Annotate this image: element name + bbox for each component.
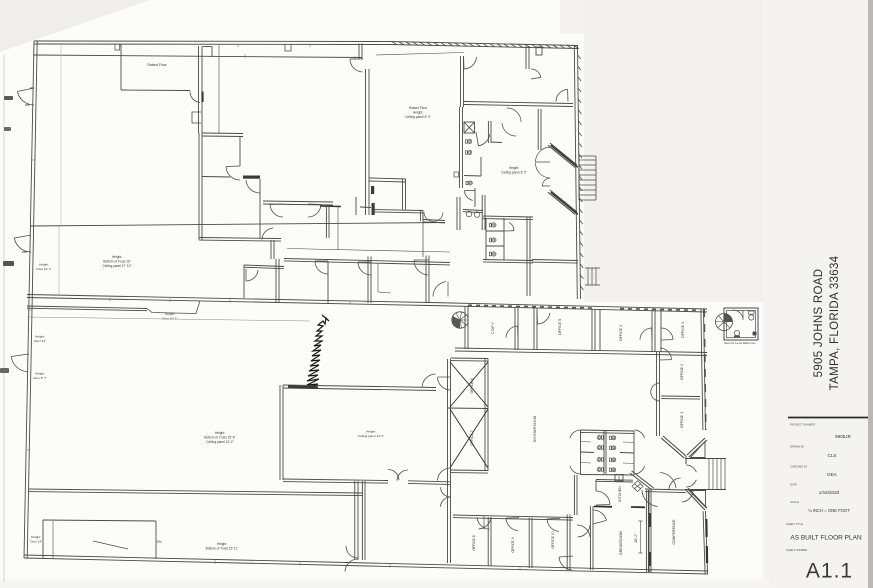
svg-text:DEA: DEA: [827, 472, 837, 477]
svg-text:ON: ON: [157, 540, 162, 544]
svg-text:Door 14': Door 14': [30, 540, 42, 544]
svg-text:18'-2": 18'-2": [634, 533, 638, 543]
svg-text:PROJECT NUMBER: PROJECT NUMBER: [790, 423, 815, 427]
svg-text:Height:: Height:: [509, 166, 519, 170]
svg-text:5905JR: 5905JR: [835, 434, 852, 439]
svg-text:5905 JOHNS ROAD: 5905 JOHNS ROAD: [813, 269, 825, 378]
svg-text:BREAKROOM: BREAKROOM: [619, 531, 623, 554]
svg-text:Height:: Height:: [165, 312, 175, 316]
svg-text:Bottom of Truss 16': Bottom of Truss 16': [103, 260, 131, 264]
svg-text:Height:: Height:: [112, 255, 122, 259]
svg-text:Height:: Height:: [35, 335, 45, 339]
svg-text:Ceiling panel 8' 0": Ceiling panel 8' 0": [501, 171, 527, 175]
svg-text:Door 10' 1": Door 10' 1": [162, 317, 177, 321]
svg-text:SHEET TITLE: SHEET TITLE: [786, 522, 803, 526]
svg-text:Ceiling panel 17' 10": Ceiling panel 17' 10": [102, 264, 131, 268]
svg-text:Height:: Height:: [39, 263, 49, 267]
svg-text:CLS: CLS: [828, 453, 837, 458]
svg-text:CONFERENCE: CONFERENCE: [672, 519, 676, 545]
svg-text:DRAWN BY: DRAWN BY: [790, 445, 805, 449]
svg-text:COPY: COPY: [491, 322, 495, 335]
svg-text:SCALE: SCALE: [790, 500, 799, 504]
svg-text:1/16/2020: 1/16/2020: [819, 490, 840, 495]
svg-text:SHOWROOM: SHOWROOM: [533, 416, 537, 443]
svg-text:CHECKED BY: CHECKED BY: [790, 465, 808, 469]
svg-text:OFFICE 4: OFFICE 4: [619, 325, 623, 341]
svg-text:OFFICE 9: OFFICE 9: [511, 537, 515, 552]
svg-text:Height:: Height:: [31, 535, 41, 539]
svg-text:Height:: Height:: [413, 111, 423, 115]
svg-text:AS BUILT FLOOR PLAN: AS BUILT FLOOR PLAN: [790, 535, 862, 542]
svg-text:Height:: Height:: [35, 372, 45, 376]
svg-text:Second Level Bathroom: Second Level Bathroom: [724, 341, 757, 345]
svg-text:TAMPA, FLORIDA 33634: TAMPA, FLORIDA 33634: [829, 255, 841, 390]
svg-text:OFFICE 3: OFFICE 3: [681, 322, 685, 338]
svg-text:Bottom of Truss 15' 11": Bottom of Truss 15' 11": [206, 547, 239, 551]
svg-text:Ceiling panel 14' 2": Ceiling panel 14' 2": [358, 434, 384, 438]
svg-text:DATE: DATE: [790, 483, 797, 487]
svg-text:Height:: Height:: [217, 542, 227, 546]
svg-text:Height:: Height:: [366, 430, 376, 434]
svg-text:OFFICE 8: OFFICE 8: [472, 535, 476, 550]
svg-text:OFFICE 2: OFFICE 2: [680, 364, 684, 380]
svg-text:OFFICE 6: OFFICE 6: [470, 378, 474, 393]
svg-text:Bottom of Truss 15' 8": Bottom of Truss 15' 8": [204, 436, 235, 440]
svg-text:Raised Floor: Raised Floor: [409, 106, 428, 110]
svg-text:Height:: Height:: [215, 431, 225, 435]
svg-text:Door 12': Door 12': [34, 339, 46, 343]
svg-text:A1.1: A1.1: [806, 560, 853, 583]
svg-text:OFFICE 10: OFFICE 10: [551, 531, 555, 548]
svg-text:SHEET NUMBER: SHEET NUMBER: [786, 548, 807, 552]
svg-text:Ceiling panel 16' 2": Ceiling panel 16' 2": [206, 440, 233, 444]
svg-text:OFFICE 1: OFFICE 1: [680, 412, 684, 428]
svg-text:OFFICE 7: OFFICE 7: [470, 430, 474, 445]
svg-text:Raised Floor: Raised Floor: [147, 63, 167, 67]
svg-text:OFFICE 5: OFFICE 5: [558, 319, 562, 335]
svg-text:Ceiling panel 8' 0": Ceiling panel 8' 0": [405, 115, 431, 119]
svg-text:Door 6' 7": Door 6' 7": [33, 376, 47, 380]
svg-text:KITCHEN: KITCHEN: [618, 486, 622, 502]
svg-text:Door 12' 1": Door 12' 1": [36, 267, 51, 271]
svg-text:¼ INCH = ONE FOOT: ¼ INCH = ONE FOOT: [808, 508, 850, 513]
